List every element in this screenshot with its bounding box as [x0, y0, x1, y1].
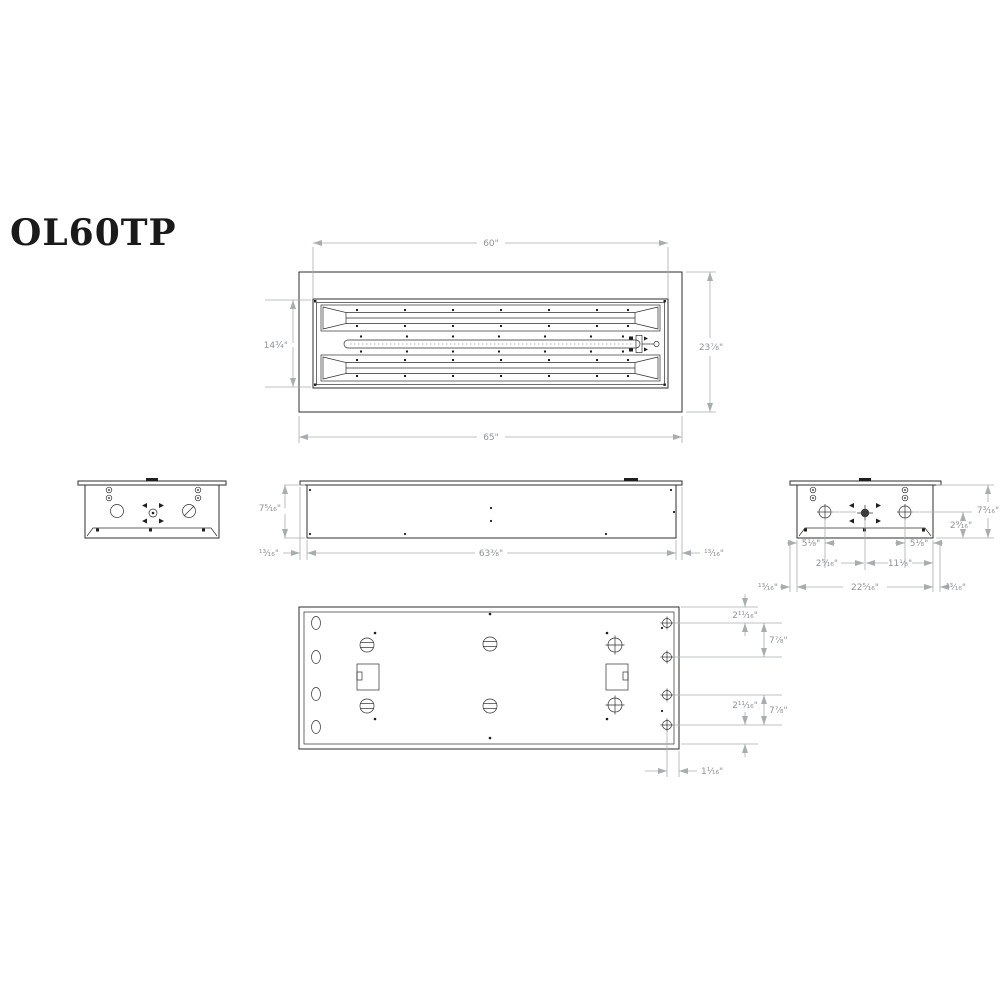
dim-label-center-to-edge: 11⅛" — [888, 559, 912, 569]
rail-rivet-dots — [360, 336, 624, 353]
dim-label-hole-spacing-lower: 7⅞" — [769, 706, 788, 716]
inner-frame-outline — [317, 303, 665, 385]
end-view-left — [78, 478, 226, 538]
dim-label-end-flange-left: ¹³⁄₁₆" — [758, 583, 778, 593]
dim-label-edge-to-hole-left: 5⅛" — [802, 539, 821, 549]
drawing-sheet: OL60TP — [0, 0, 1000, 1000]
reflector-end-right — [635, 307, 658, 329]
pilot-dots — [374, 613, 663, 740]
bottom-view: 2¹¹⁄₁₆" 7⅞" 7⅞" 2¹¹⁄₁₆" 1¹⁄₁₆" — [299, 594, 788, 777]
flange-outline — [299, 272, 682, 412]
flange-profile — [300, 481, 682, 485]
dim-label-overall-depth: 23⅞" — [699, 343, 723, 353]
flange-profile — [790, 481, 941, 485]
slotted-screw-holes — [360, 637, 497, 713]
lamp-assembly-top — [321, 305, 660, 331]
bottom-view-dimensions: 2¹¹⁄₁₆" 7⅞" 7⅞" 2¹¹⁄₁₆" 1¹⁄₁₆" — [645, 594, 788, 777]
dim-label-overall-width: 65" — [483, 433, 499, 443]
crosshair-holes-large — [606, 636, 625, 715]
top-view: 60" 65" 14¾" 23⅞" — [264, 239, 723, 443]
oval-slots — [312, 617, 321, 734]
center-pilot-hole — [142, 503, 164, 524]
screw-holes — [810, 487, 908, 501]
dim-label-center-offset: 2⁵⁄₁₆" — [816, 559, 838, 569]
crosshair-holes-small — [661, 617, 674, 732]
mounting-hole-crosshair-right — [897, 504, 913, 520]
dim-label-hole-to-edge-offset: 1¹⁄₁₆" — [701, 767, 723, 777]
center-rail — [344, 336, 659, 353]
side-view: 7⁵⁄₁₆" ¹³⁄₁₆" 63⅜" ¹³⁄₁₆" — [259, 478, 724, 560]
reflector-end-left — [323, 307, 346, 329]
housing-inner-outline — [304, 612, 674, 744]
dim-label-hole-spacing-upper: 7⅞" — [769, 636, 788, 646]
dim-label-opening-height: 14¾" — [264, 341, 288, 351]
end-view-right: 7³⁄₁₆" 2⁹⁄₁₆" 5⅛" 5⅛" 2⁵⁄₁₆" 1 — [758, 478, 999, 593]
dim-label-inner-width: 60" — [483, 239, 499, 249]
dim-label-edge-to-hole-top: 2¹¹⁄₁₆" — [732, 611, 758, 621]
flange-profile — [78, 481, 226, 485]
knockout-rect-left — [357, 664, 379, 690]
dim-label-edge-to-hole-right: 5⅛" — [910, 539, 929, 549]
dim-label-flange-right: ¹³⁄₁₆" — [704, 549, 724, 559]
knockout-hole-right — [183, 505, 196, 518]
dim-label-end-flange-right: ¹³⁄₁₆" — [946, 583, 966, 593]
fastener-dots — [309, 489, 675, 535]
dim-label-hole-to-bottom: 2⁹⁄₁₆" — [950, 521, 972, 531]
lamp-assembly-bottom — [321, 355, 660, 381]
mounting-tab — [146, 478, 158, 481]
housing-outline — [299, 607, 679, 749]
dim-label-end-height: 7³⁄₁₆" — [977, 506, 999, 516]
dim-label-end-width: 22⁵⁄₁₆" — [851, 583, 879, 593]
technical-drawing: 60" 65" 14¾" 23⅞" — [0, 0, 1000, 1000]
mounting-tab — [624, 478, 638, 481]
hook-hole — [654, 341, 659, 346]
mounting-tab — [859, 478, 871, 481]
reflector-end-right — [635, 357, 658, 379]
mounting-hole-crosshair-left — [817, 504, 833, 520]
end-view-dimensions: 7³⁄₁₆" 2⁹⁄₁₆" 5⅛" 5⅛" 2⁵⁄₁₆" 1 — [758, 485, 999, 593]
reflector-end-left — [323, 357, 346, 379]
mounting-bracket-detail — [629, 336, 659, 353]
dim-label-edge-to-hole-bottom: 2¹¹⁄₁₆" — [732, 701, 758, 711]
knockout-hole-left — [111, 505, 124, 518]
corner-fastener-dots — [314, 300, 666, 386]
dim-label-body-length: 63⅜" — [479, 549, 503, 559]
knockout-rect-right — [606, 664, 628, 690]
side-view-dimensions: 7⁵⁄₁₆" ¹³⁄₁₆" 63⅜" ¹³⁄₁₆" — [259, 485, 724, 560]
dim-label-side-height: 7⁵⁄₁₆" — [259, 504, 281, 514]
dim-label-flange-left: ¹³⁄₁₆" — [259, 549, 279, 559]
screw-holes — [106, 487, 201, 501]
body-profile — [307, 485, 676, 538]
